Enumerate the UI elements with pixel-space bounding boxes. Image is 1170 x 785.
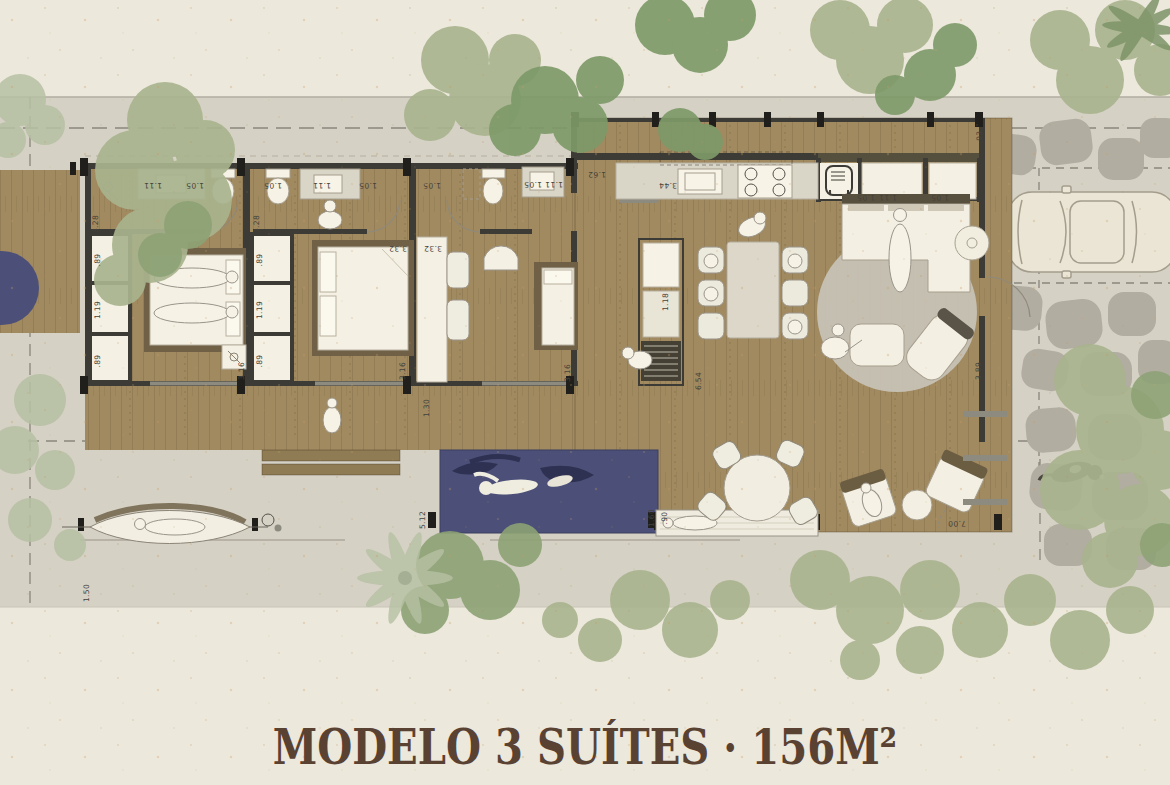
paper-grain-overlay	[0, 0, 1170, 785]
floor-plan-svg: 1.11 1.05 1.05 1.11 1.05 1.05 1.05 1.11 …	[0, 0, 1170, 785]
floor-plan-poster: 1.11 1.05 1.05 1.11 1.05 1.05 1.05 1.11 …	[0, 0, 1170, 785]
plan-title: MODELO 3 SUÍTES · 156M²	[273, 718, 897, 776]
